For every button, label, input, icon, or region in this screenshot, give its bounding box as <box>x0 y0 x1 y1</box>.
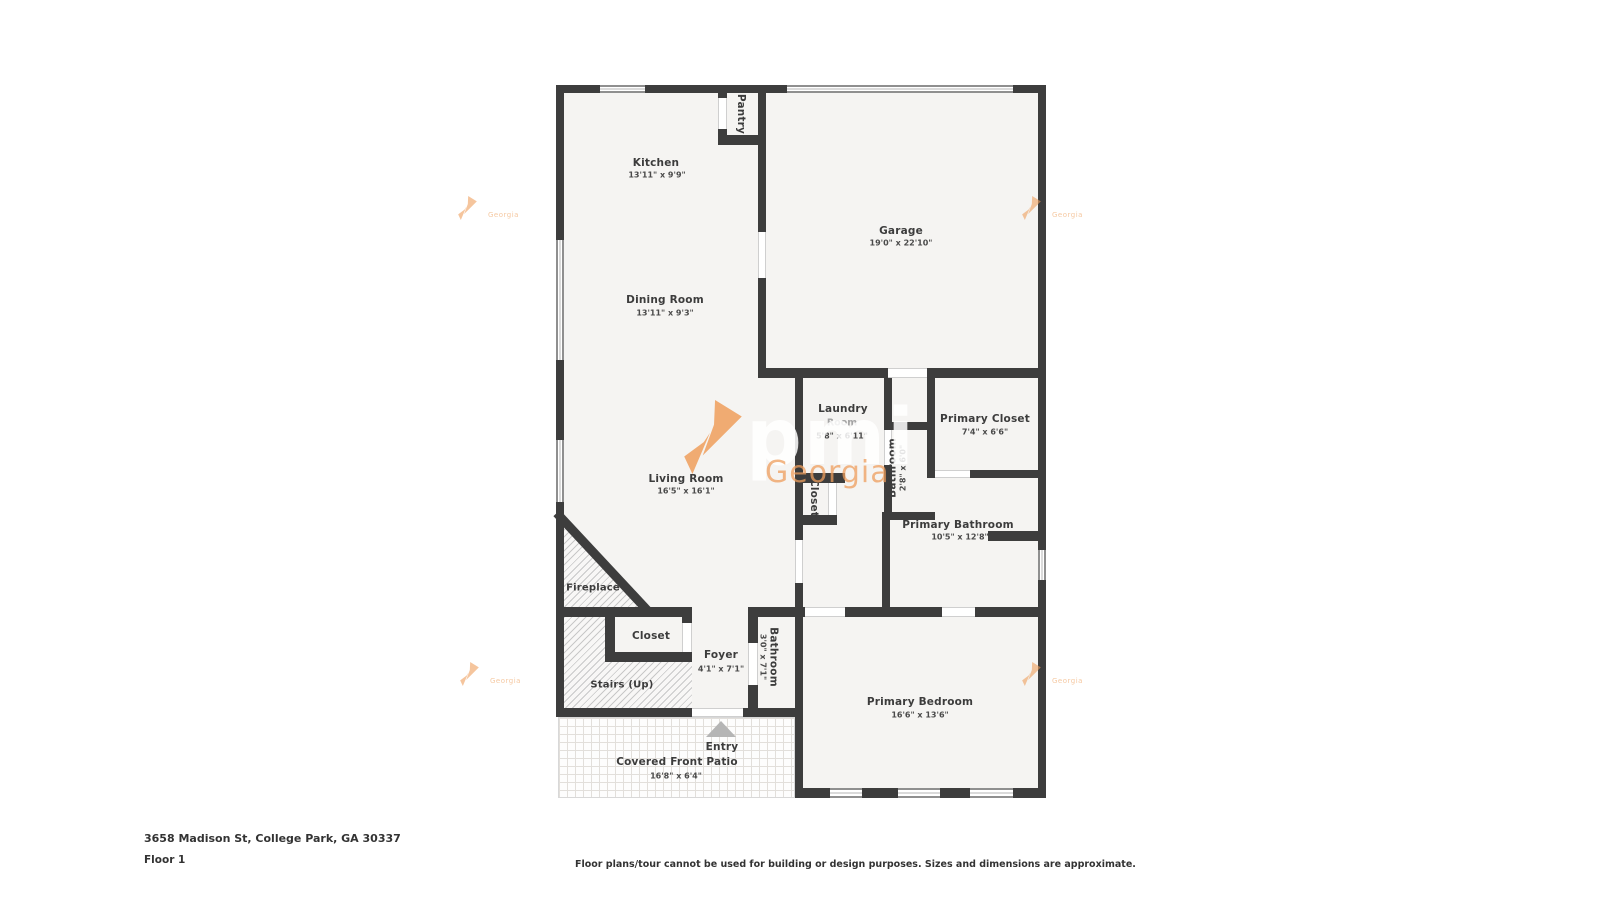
room-label-fireplace: Fireplace <box>566 583 620 594</box>
window <box>830 788 862 798</box>
room-label-hall-closet: Closet <box>808 479 820 517</box>
pmi-logo-icon <box>1022 196 1041 220</box>
door-opening <box>888 368 927 378</box>
window <box>556 240 564 298</box>
floor-number: Floor 1 <box>144 854 185 866</box>
room-dims-primary-closet: 7'4" x 6'6" <box>962 428 1008 437</box>
watermark-georgia-text: Georgia <box>488 211 519 219</box>
door-opening <box>795 540 803 583</box>
room-label-primary-bedroom: Primary Bedroom <box>867 696 973 708</box>
room-label-living: Living Room <box>648 473 723 485</box>
wall <box>882 512 890 615</box>
floor-area-bedroom <box>795 717 1046 798</box>
wall <box>743 708 803 717</box>
watermark-corner: Georgia <box>458 196 477 224</box>
room-dims-primary-bathroom: 10'5" x 12'8" <box>931 533 988 542</box>
room-label-dining: Dining Room <box>626 294 704 306</box>
room-dims-primary-bedroom: 16'6" x 13'6" <box>891 711 948 720</box>
wall <box>927 368 1040 378</box>
wall <box>718 135 766 145</box>
garage-door-band <box>787 85 1013 93</box>
window <box>556 440 564 502</box>
door-opening <box>935 470 970 478</box>
room-dims-kitchen: 13'11" x 9'9" <box>628 171 685 180</box>
room-label-garage: Garage <box>879 225 923 237</box>
pmi-logo-icon <box>460 662 479 686</box>
entry-opening <box>692 708 743 717</box>
room-label-laundry: Laundry <box>818 403 868 415</box>
room-label-kitchen: Kitchen <box>633 157 679 169</box>
room-dims-dining: 13'11" x 9'3" <box>636 309 693 318</box>
door-opening <box>748 643 758 685</box>
wall <box>1038 85 1046 798</box>
room-dims-laundry: 5'8" x 6'11" <box>816 432 868 441</box>
window <box>600 85 645 93</box>
watermark-corner: Georgia <box>1022 662 1041 690</box>
wall <box>758 368 888 378</box>
entry-arrow-icon <box>706 721 736 737</box>
watermark-corner: Georgia <box>1022 196 1041 224</box>
window <box>556 298 564 360</box>
property-address: 3658 Madison St, College Park, GA 30337 <box>144 832 401 845</box>
wall <box>605 652 692 662</box>
door-opening <box>942 607 975 617</box>
room-label-foyer: Foyer <box>704 649 738 661</box>
wall <box>988 531 1040 541</box>
floor-plan: Kitchen 13'11" x 9'9" Pantry Garage 19'0… <box>556 85 1046 800</box>
window <box>898 788 940 798</box>
wall <box>927 368 935 478</box>
pmi-logo-icon <box>458 196 477 220</box>
disclaimer-text: Floor plans/tour cannot be used for buil… <box>575 859 1136 870</box>
door-opening <box>828 483 837 515</box>
door-opening <box>682 623 692 652</box>
room-label-patio: Covered Front Patio <box>616 756 738 768</box>
wall <box>556 85 564 717</box>
room-label-bathroom-small: Bathroom 2'8" x 6'0" <box>887 438 908 498</box>
pmi-logo-icon <box>1022 662 1041 686</box>
window <box>970 788 1013 798</box>
wall <box>556 607 692 617</box>
room-label-pantry: Pantry <box>735 94 747 134</box>
watermark-georgia-text: Georgia <box>1052 211 1083 219</box>
watermark-georgia-text: Georgia <box>1052 677 1083 685</box>
room-label-foyer-bathroom: Bathroom 3'0" x 7'1" <box>759 627 780 687</box>
door-opening <box>758 232 766 278</box>
room-label-entry: Entry <box>706 741 739 753</box>
room-dims-garage: 19'0" x 22'10" <box>870 239 933 248</box>
room-label-primary-bathroom: Primary Bathroom <box>902 519 1014 531</box>
room-label-foyer-closet: Closet <box>632 630 670 642</box>
wall <box>845 607 942 617</box>
room-dims-foyer: 4'1" x 7'1" <box>698 665 744 674</box>
room-dims-patio: 16'8" x 6'4" <box>650 772 702 781</box>
door-opening <box>718 98 727 129</box>
room-label-stairs: Stairs (Up) <box>590 680 653 691</box>
watermark-georgia-text: Georgia <box>490 677 521 685</box>
door-opening <box>805 607 845 617</box>
wall <box>795 473 845 483</box>
room-label-primary-closet: Primary Closet <box>940 413 1030 425</box>
wall <box>556 708 692 717</box>
room-label-laundry-2: Room <box>827 418 857 429</box>
floor-plan-page: { "palette": { "wall": "#3d3d3d", "floor… <box>0 0 1600 901</box>
wall <box>975 607 1040 617</box>
room-dims-living: 16'5" x 16'1" <box>657 487 714 496</box>
wall <box>970 470 1040 478</box>
window <box>1038 550 1046 580</box>
wall <box>748 607 805 617</box>
watermark-corner: Georgia <box>460 662 479 690</box>
